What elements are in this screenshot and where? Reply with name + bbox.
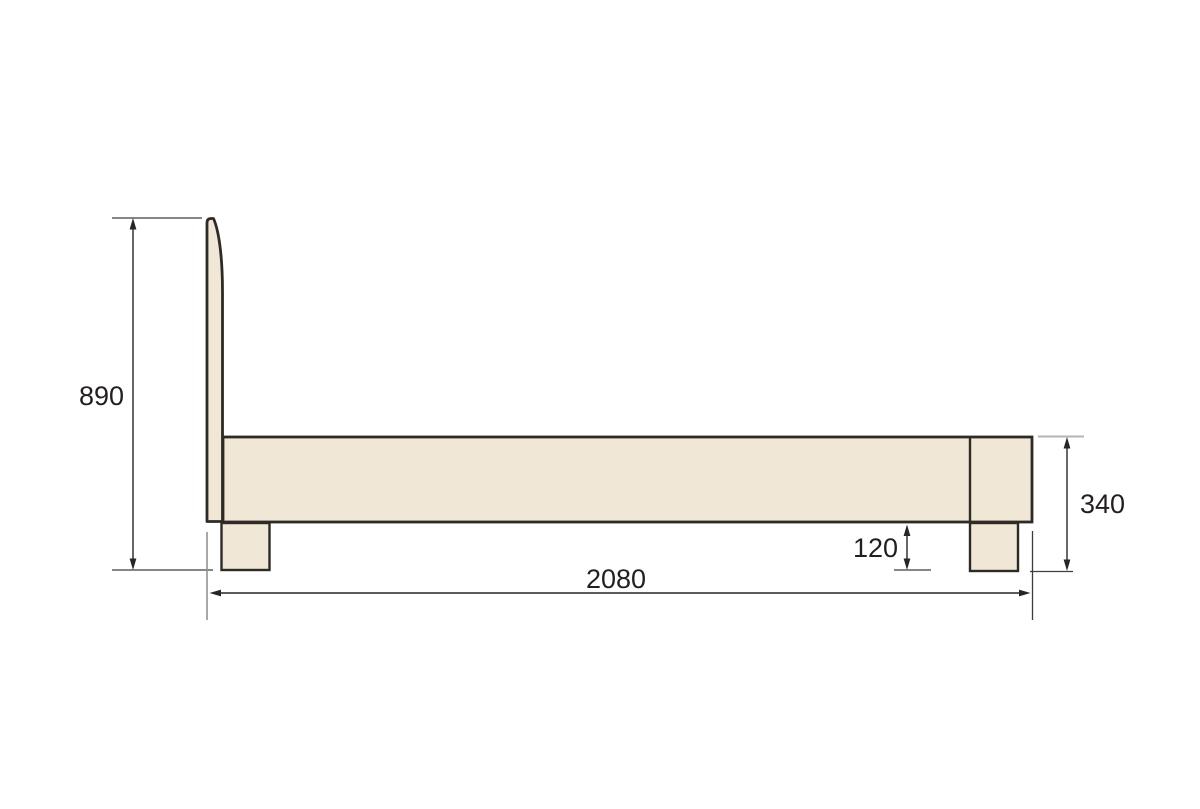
front-leg [222, 523, 270, 570]
dim-overall-height-arrow-bottom [130, 559, 137, 571]
dim-overall-height: 890 [79, 218, 213, 570]
dim-overall-height-arrow-top [130, 218, 137, 230]
bed-dimension-diagram: 890 340 120 2080 [0, 0, 1200, 809]
dim-label-overall-height: 890 [79, 381, 124, 411]
dim-rail-height-arrow-bottom [1064, 560, 1071, 572]
dim-rail-height-arrow-top [1064, 437, 1071, 449]
dim-floor-clearance: 120 [853, 525, 931, 571]
side-rail [223, 437, 1032, 522]
headboard-panel [207, 219, 223, 522]
dim-label-overall-length: 2080 [586, 564, 646, 594]
dim-rail-height: 340 [1030, 437, 1125, 572]
dim-label-floor-clearance: 120 [853, 533, 898, 563]
rear-leg [970, 523, 1018, 571]
dim-overall-length-arrow-right [1019, 590, 1031, 597]
dim-overall-length-arrow-left [210, 590, 222, 597]
dim-floor-clearance-arrow-top [904, 525, 911, 537]
technical-drawing-canvas: 890 340 120 2080 [0, 0, 1200, 809]
dim-overall-length: 2080 [207, 531, 1033, 620]
dim-label-rail-height: 340 [1080, 489, 1125, 519]
dim-floor-clearance-arrow-bottom [904, 559, 911, 571]
bed-side-view [207, 219, 1032, 572]
